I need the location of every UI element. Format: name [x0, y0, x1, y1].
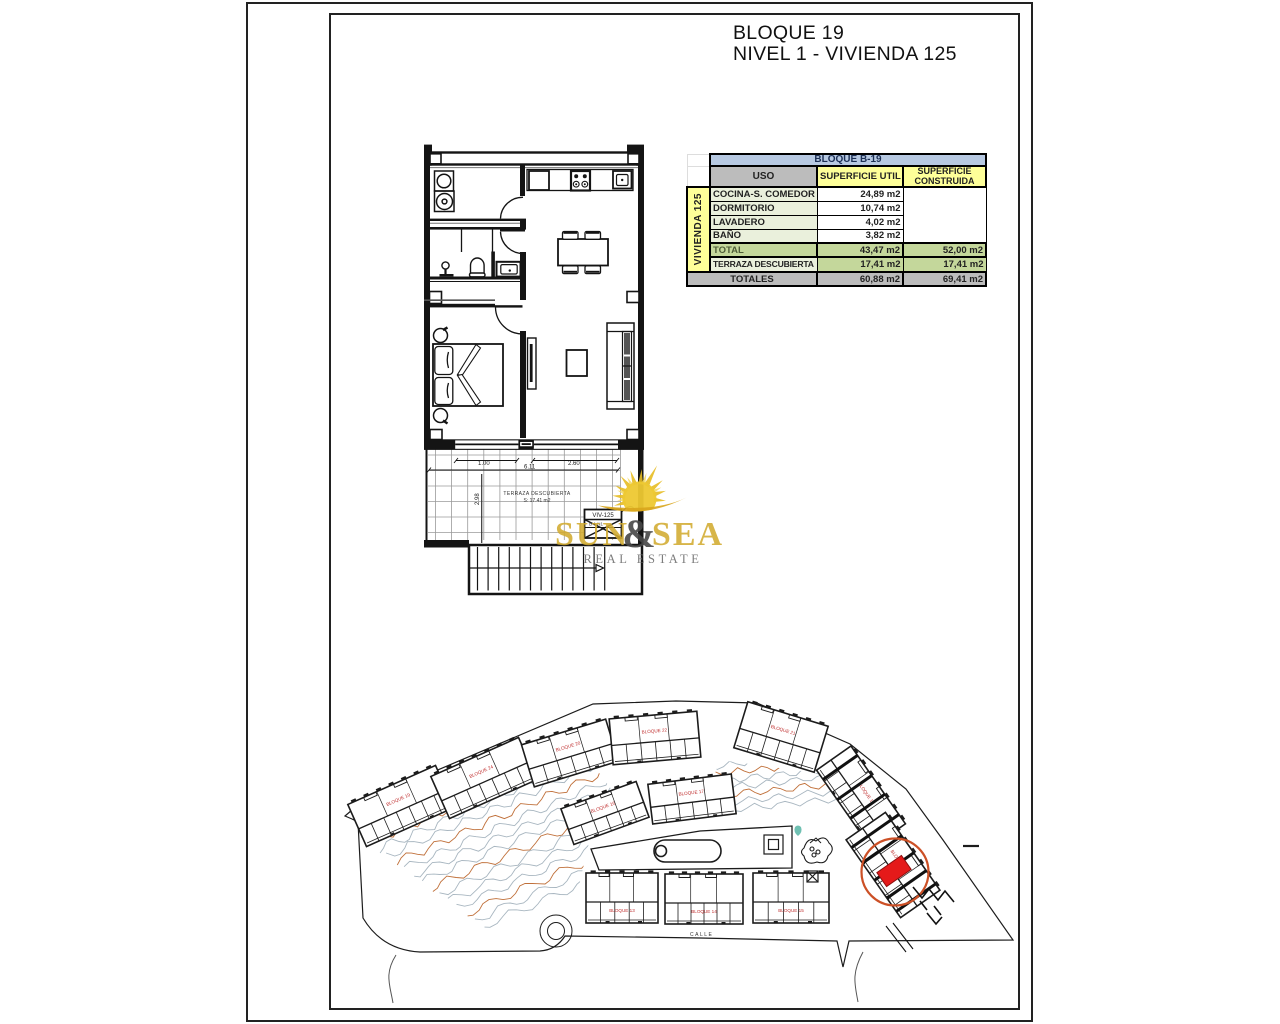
svg-text:BLOQUE 13: BLOQUE 13: [609, 908, 635, 913]
svg-text:BLOQUE 15: BLOQUE 15: [778, 908, 804, 913]
svg-text:1.00: 1.00: [478, 461, 490, 467]
svg-text:2.98: 2.98: [475, 493, 481, 505]
svg-text:CALLE: CALLE: [690, 932, 713, 938]
svg-text:SEA: SEA: [652, 516, 724, 553]
svg-text:S: 17.41 m2: S: 17.41 m2: [524, 498, 551, 504]
svg-text:REAL ESTATE: REAL ESTATE: [583, 552, 702, 566]
svg-text:6.11: 6.11: [524, 465, 536, 471]
svg-text:BLOQUE 14: BLOQUE 14: [691, 909, 717, 914]
svg-text:SUN: SUN: [555, 516, 629, 553]
svg-text:&: &: [622, 511, 655, 556]
